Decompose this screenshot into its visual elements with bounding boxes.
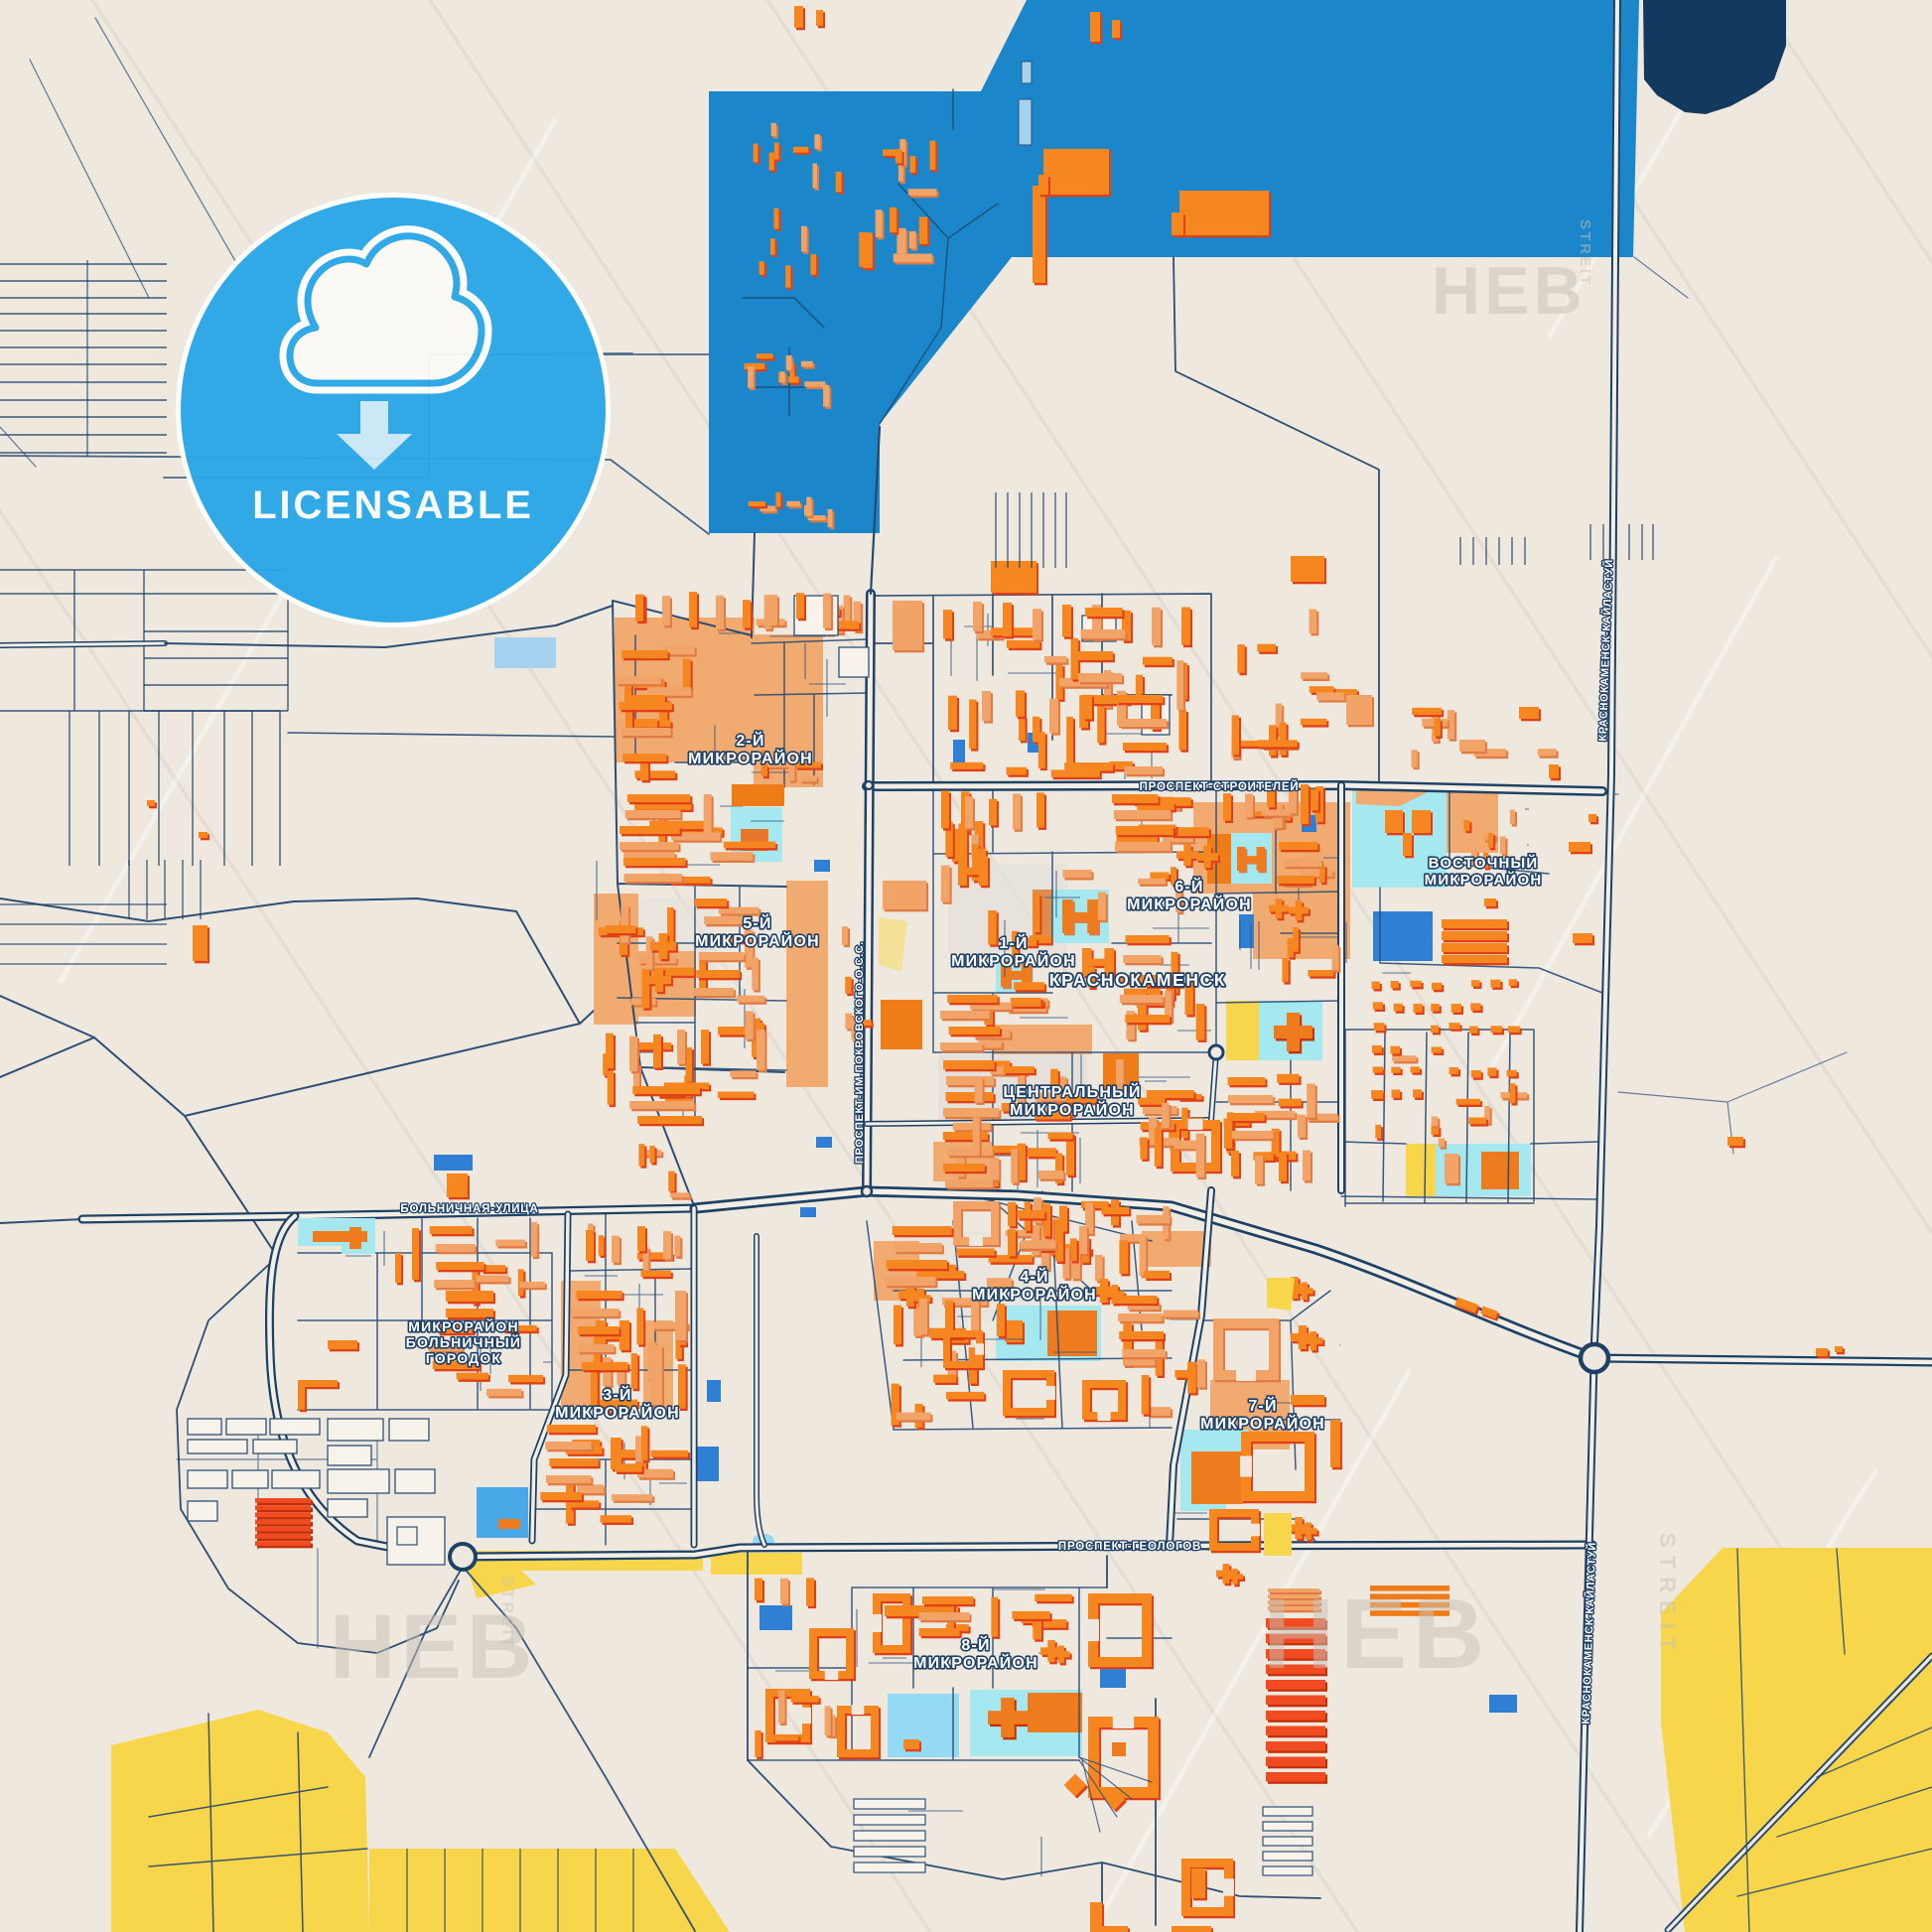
svg-text:ПРОСПЕКТ-СТРОИТЕЛЕЙ: ПРОСПЕКТ-СТРОИТЕЛЕЙ (1140, 780, 1300, 793)
svg-text:ПРОСПЕКТ-ИМ.ПОКРОВСКОГО-О.С.С.: ПРОСПЕКТ-ИМ.ПОКРОВСКОГО-О.С.С. (854, 941, 866, 1164)
svg-text:HEB: HEB (1263, 1579, 1490, 1690)
svg-text:STREIT: STREIT (498, 1576, 515, 1650)
svg-text:МИКРОРАЙОН: МИКРОРАЙОН (1010, 1100, 1135, 1119)
svg-text:6-Й: 6-Й (1174, 877, 1203, 896)
svg-text:МИКРОРАЙОН: МИКРОРАЙОН (972, 1285, 1097, 1304)
svg-text:БОЛЬНИЧНЫЙ: БОЛЬНИЧНЫЙ (406, 1333, 521, 1350)
svg-text:МИКРОРАЙОН: МИКРОРАЙОН (1200, 1414, 1325, 1433)
svg-text:8-Й: 8-Й (961, 1635, 990, 1654)
svg-text:2-Й: 2-Й (736, 731, 764, 750)
svg-text:ВОСТОЧНЫЙ: ВОСТОЧНЫЙ (1429, 854, 1539, 872)
svg-text:HEB: HEB (1432, 253, 1587, 329)
svg-text:МИКРОРАЙОН: МИКРОРАЙОН (913, 1653, 1038, 1672)
svg-text:ЦЕНТРАЛЬНЫЙ: ЦЕНТРАЛЬНЫЙ (1003, 1082, 1141, 1101)
svg-text:МИКРОРАЙОН: МИКРОРАЙОН (1127, 895, 1252, 913)
svg-text:МИКРОРАЙОН: МИКРОРАЙОН (695, 931, 820, 950)
svg-text:МИКРОРАЙОН: МИКРОРАЙОН (688, 749, 813, 767)
svg-text:7-Й: 7-Й (1248, 1396, 1277, 1415)
svg-text:ГОРОДОК: ГОРОДОК (426, 1350, 501, 1366)
svg-text:МИКРОРАЙОН: МИКРОРАЙОН (408, 1317, 519, 1334)
svg-text:ПРОСПЕКТ-ГЕОЛОГОВ: ПРОСПЕКТ-ГЕОЛОГОВ (1058, 1541, 1201, 1553)
svg-text:STREIT: STREIT (1655, 1533, 1680, 1658)
svg-text:5-Й: 5-Й (743, 913, 771, 932)
svg-text:МИКРОРАЙОН: МИКРОРАЙОН (1425, 871, 1543, 889)
svg-text:3-Й: 3-Й (603, 1385, 631, 1404)
svg-text:КРАСНОКАМЕНСК: КРАСНОКАМЕНСК (1049, 970, 1226, 990)
svg-text:4-Й: 4-Й (1020, 1267, 1048, 1286)
svg-text:STREIT: STREIT (1577, 219, 1593, 287)
svg-text:МИКРОРАЙОН: МИКРОРАЙОН (951, 951, 1076, 970)
svg-text:БОЛЬНИЧНАЯ-УЛИЦА: БОЛЬНИЧНАЯ-УЛИЦА (400, 1203, 538, 1215)
svg-text:МИКРОРАЙОН: МИКРОРАЙОН (555, 1403, 680, 1422)
svg-text:1-Й: 1-Й (999, 933, 1028, 952)
svg-text:LICENSABLE: LICENSABLE (252, 483, 534, 527)
